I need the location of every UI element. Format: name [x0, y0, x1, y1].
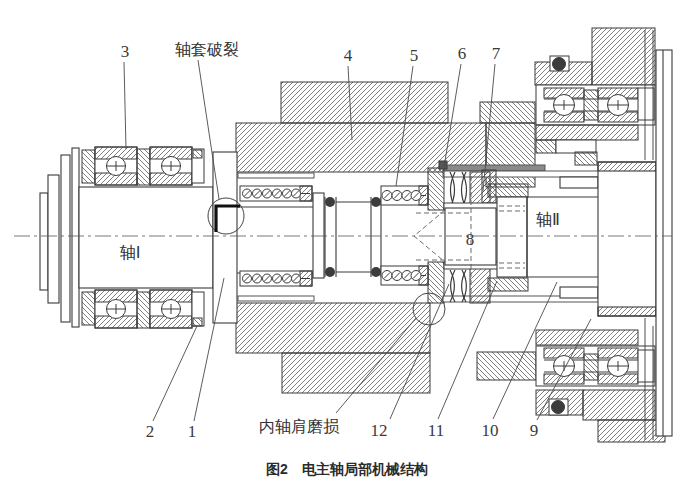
spring-band-top-left [240, 186, 312, 201]
part-label-4: 4 [344, 46, 353, 65]
spindle-cross-section-diagram: 3 4 5 6 7 1 2 12 11 10 9 8 轴套破裂 内轴肩磨损 轴Ⅰ… [0, 0, 680, 486]
part-label-3: 3 [121, 42, 130, 61]
part-label-6: 6 [458, 44, 467, 63]
part-label-7: 7 [492, 44, 501, 63]
figure-page: 3 4 5 6 7 1 2 12 11 10 9 8 轴套破裂 内轴肩磨损 轴Ⅰ… [0, 0, 680, 486]
left-bearings-bottom [82, 290, 204, 328]
part-label-5: 5 [410, 46, 419, 65]
locknut [497, 197, 527, 277]
part-label-9: 9 [530, 421, 539, 440]
left-bearings-top [82, 147, 204, 185]
figure-caption: 图2 电主轴局部机械结构 [266, 461, 428, 477]
oring-seal-bottom [552, 401, 565, 414]
spring-band-bottom-right [381, 266, 428, 285]
shaft1-label: 轴Ⅰ [120, 244, 141, 261]
shoulder-wear-annotation: 内轴肩磨损 [259, 418, 340, 435]
part-label-1: 1 [188, 422, 197, 441]
cracked-sleeve [213, 152, 237, 323]
shaft1-body [79, 187, 213, 288]
part-label-8: 8 [466, 230, 475, 249]
right-bearings-bottom [536, 330, 655, 386]
part-label-2: 2 [146, 422, 155, 441]
oring-seal-top [553, 58, 566, 71]
part-label-10: 10 [482, 421, 499, 440]
shaft2-label: 轴Ⅱ [536, 211, 560, 228]
spring-band-bottom-left [240, 271, 312, 286]
sleeve-crack-annotation: 轴套破裂 [175, 41, 239, 58]
part-label-12: 12 [371, 421, 388, 440]
part-label-11: 11 [428, 421, 444, 440]
retaining-key [439, 161, 447, 169]
spring-band-top-right [381, 186, 428, 205]
